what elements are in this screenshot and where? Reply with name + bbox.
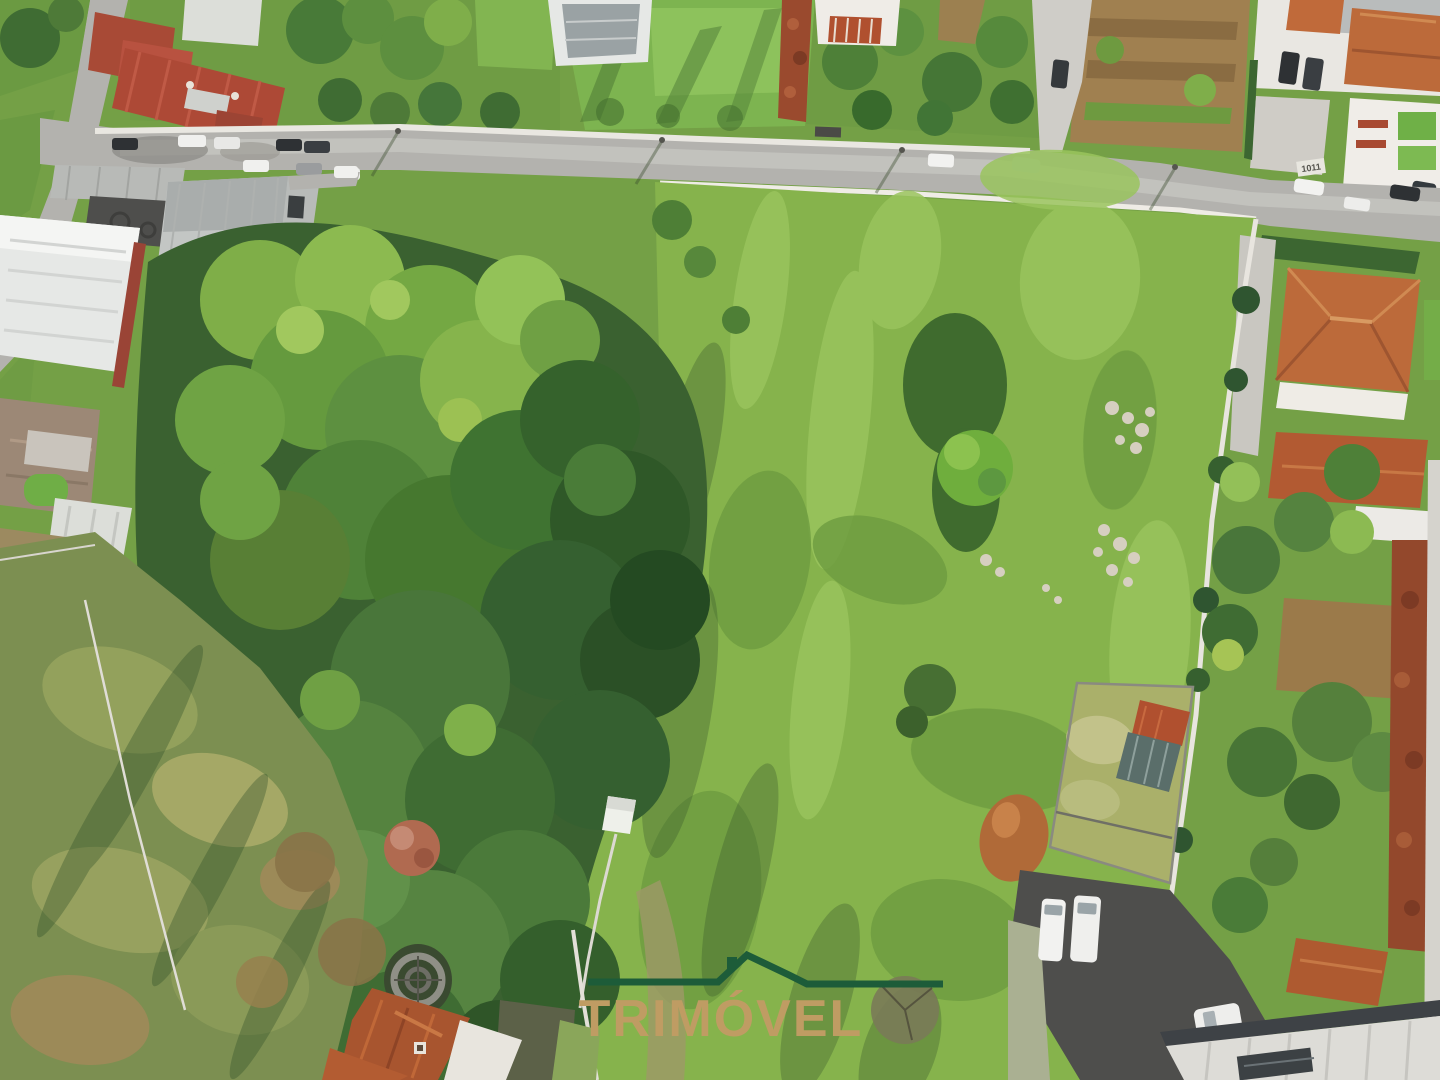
aerial-photo: 1011 (0, 0, 1440, 1080)
logo-text: TRIMÓVEL (579, 990, 864, 1048)
pergola-house (815, 0, 900, 46)
pink-tree (384, 820, 440, 876)
gate (815, 127, 841, 138)
garden-plots (1070, 0, 1250, 152)
aerial-photo-svg: 1011 (0, 0, 1440, 1080)
modern-white-house (548, 0, 652, 66)
parked-car (1051, 59, 1070, 89)
